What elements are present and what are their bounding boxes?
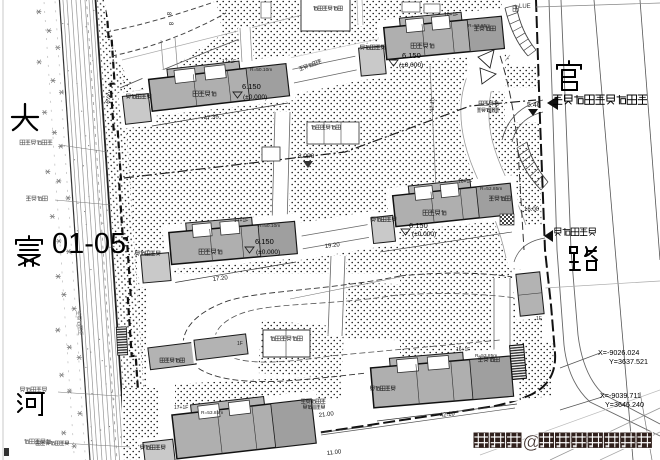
svg-text:(±0.000): (±0.000)	[399, 62, 423, 69]
svg-text:6.150: 6.150	[402, 51, 421, 60]
svg-text:6.150: 6.150	[242, 82, 261, 91]
svg-text:16+1F: 16+1F	[456, 347, 470, 353]
svg-text:8.000: 8.000	[298, 153, 315, 160]
svg-text:X=-9039.711: X=-9039.711	[600, 391, 641, 400]
svg-text:Y=3646.240: Y=3646.240	[605, 400, 644, 409]
svg-text:R=53.85m: R=53.85m	[475, 353, 497, 359]
svg-text:R=53.85m: R=53.85m	[201, 410, 223, 416]
svg-text:(±0.000): (±0.000)	[243, 94, 267, 101]
svg-text:R=50.10m: R=50.10m	[250, 67, 272, 73]
svg-text:(±0.000): (±0.000)	[256, 249, 280, 256]
svg-text:1F: 1F	[536, 316, 542, 322]
svg-text:(±0.000): (±0.000)	[412, 231, 436, 238]
svg-text:X=-9026.024: X=-9026.024	[598, 348, 639, 357]
svg-text:17+1F: 17+1F	[222, 59, 236, 65]
svg-text:16.00: 16.00	[524, 207, 540, 213]
svg-text:Y=3637.521: Y=3637.521	[609, 357, 648, 366]
svg-text:16+1F: 16+1F	[458, 179, 472, 185]
svg-text:LUE: LUE	[519, 4, 531, 10]
svg-text:R=53.85m: R=53.85m	[480, 186, 502, 192]
svg-text:17+1F: 17+1F	[174, 405, 188, 411]
svg-text:17+1F: 17+1F	[234, 218, 248, 224]
svg-text:01-05: 01-05	[52, 228, 126, 260]
svg-text:6.150: 6.150	[409, 221, 428, 230]
svg-text:1F: 1F	[237, 341, 243, 347]
svg-text:5.40: 5.40	[527, 102, 541, 109]
svg-text:6.150: 6.150	[255, 237, 274, 246]
svg-text:R=50.10m: R=50.10m	[258, 223, 280, 229]
svg-text:16+1F: 16+1F	[444, 12, 458, 18]
